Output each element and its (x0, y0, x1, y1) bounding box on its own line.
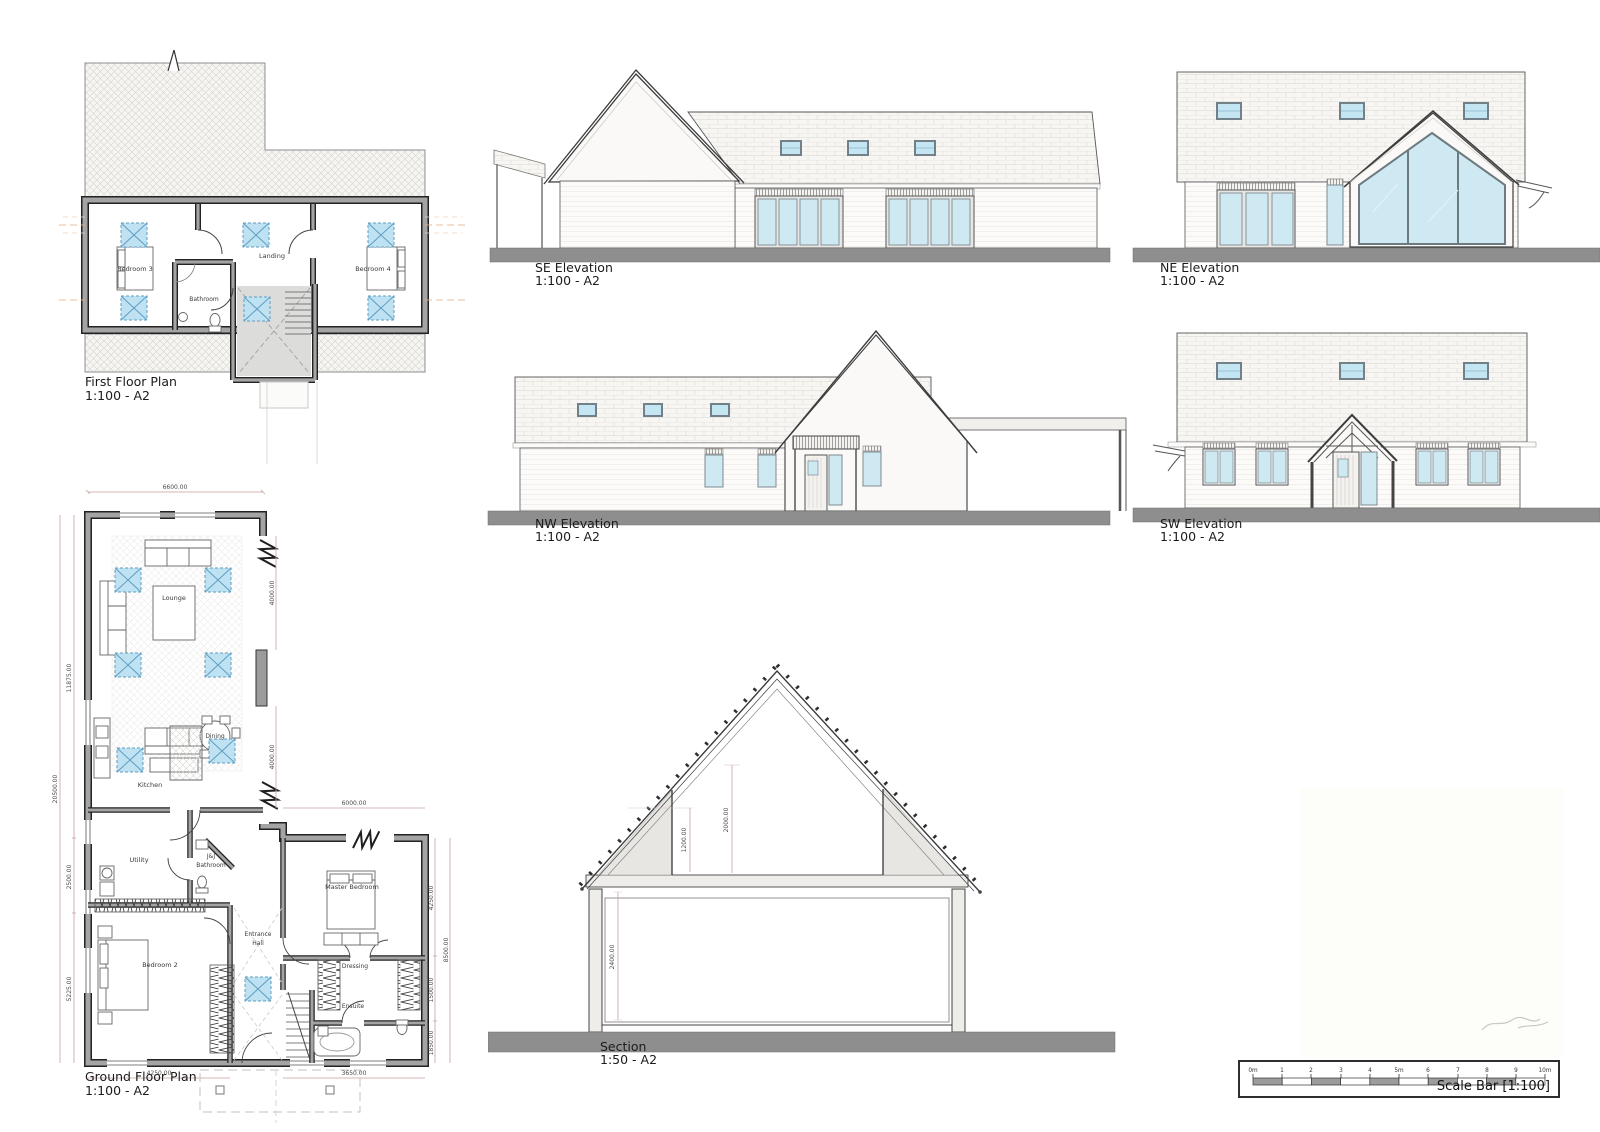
dim-gf-right-outer: 8500.00 (443, 937, 450, 962)
scale-bar: 0m 1 2 3 4 5m 6 7 8 9 10m (1238, 1060, 1560, 1098)
scale-tick-5: 5m (1394, 1068, 1404, 1074)
section-drawing: 1200.00 2000.00 2400.00 (488, 613, 1118, 1053)
scale-tick-1: 1 (1280, 1068, 1284, 1074)
dim-section-attic-inner: 1200.00 (681, 827, 688, 852)
dim-gf-left-upper: 11875.00 (66, 664, 73, 693)
dim-gf-master-top: 6000.00 (342, 800, 367, 807)
scale-tick-8: 8 (1485, 1068, 1489, 1074)
dim-gf-left-outer: 20500.00 (52, 775, 59, 804)
room-label-ensuite: Ensuite (342, 1003, 365, 1010)
label-ground-floor-plan-title: Ground Floor Plan (85, 1070, 197, 1083)
scale-tick-4: 4 (1368, 1068, 1372, 1074)
dim-gf-lounge-upper: 4000.00 (269, 580, 276, 605)
section-view: 1200.00 2000.00 2400.00 (488, 613, 1118, 1057)
scale-bar-label: Scale Bar [1:100] (1437, 1079, 1550, 1094)
sw-elevation-view (1128, 305, 1600, 531)
scale-tick-3: 3 (1339, 1068, 1343, 1074)
label-se-elevation-scale: 1:100 - A2 (535, 274, 600, 287)
room-label-utility: Utility (129, 856, 148, 864)
first-floor-plan-view: Bedroom 3 Bathroom Landing Bedroom 4 (55, 40, 475, 474)
scale-tick-9: 9 (1514, 1068, 1518, 1074)
first-floor-plan-drawing: Bedroom 3 Bathroom Landing Bedroom 4 (55, 40, 475, 470)
dim-section-ground: 2400.00 (609, 944, 616, 969)
room-label-bedroom4: Bedroom 4 (355, 265, 391, 273)
room-label-bedroom2: Bedroom 2 (142, 961, 178, 969)
dim-gf-left-mid: 2500.00 (66, 864, 73, 889)
label-ne-elevation-scale: 1:100 - A2 (1160, 274, 1225, 287)
se-elevation-view (488, 52, 1113, 268)
drawing-sheet: Bedroom 3 Bathroom Landing Bedroom 4 Fir… (0, 0, 1600, 1132)
label-nw-elevation-scale: 1:100 - A2 (535, 530, 600, 543)
room-label-entrance-2: Hall (252, 940, 264, 947)
nw-window-right (863, 446, 881, 486)
room-label-jj-1: J&J (206, 853, 215, 860)
room-label-jj-2: Bathroom (196, 862, 226, 869)
dim-gf-left-lower: 5225.00 (66, 976, 73, 1001)
ne-narrow-window (1327, 179, 1343, 245)
dim-gf-master-right: 4250.00 (428, 885, 435, 910)
label-first-floor-plan-scale: 1:100 - A2 (85, 389, 150, 402)
label-ground-floor-plan-scale: 1:100 - A2 (85, 1084, 150, 1097)
room-label-dining: Dining (205, 733, 225, 740)
label-first-floor-plan-title: First Floor Plan (85, 375, 177, 388)
scale-tick-7: 7 (1456, 1068, 1460, 1074)
ground-floor-plan-drawing: 6600.00 11875.00 2500.00 5225.00 20500.0… (50, 478, 470, 1126)
dim-gf-ensuite-right: 1850.00 (428, 1030, 435, 1055)
room-label-kitchen: Kitchen (138, 781, 162, 789)
dim-section-attic-full: 2000.00 (723, 807, 730, 832)
ne-elevation-drawing (1128, 52, 1600, 264)
ne-glazed-doors (1217, 183, 1295, 248)
room-label-lounge: Lounge (162, 594, 186, 602)
scale-tick-6: 6 (1426, 1068, 1430, 1074)
room-label-entrance-1: Entrance (245, 931, 272, 938)
dim-gf-dressing-right: 1500.00 (428, 977, 435, 1002)
label-sw-elevation-scale: 1:100 - A2 (1160, 530, 1225, 543)
signature-mark (1478, 1012, 1562, 1038)
dim-gf-top: 6600.00 (163, 484, 188, 491)
sw-elevation-drawing (1128, 305, 1600, 527)
nw-elevation-drawing (483, 305, 1128, 527)
scale-tick-10: 10m (1538, 1068, 1551, 1074)
dim-gf-lounge-lower: 4000.00 (269, 744, 276, 769)
nw-elevation-view (483, 305, 1128, 531)
room-label-master: Master Bedroom (325, 883, 379, 891)
se-elevation-drawing (488, 52, 1113, 264)
room-label-landing: Landing (259, 252, 285, 260)
label-section-scale: 1:50 - A2 (600, 1053, 657, 1066)
section-ground-bar (488, 1032, 1115, 1052)
scale-bar-ticks: 0m 1 2 3 4 5m 6 7 8 9 10m (1248, 1068, 1552, 1074)
ground-floor-plan-view: 6600.00 11875.00 2500.00 5225.00 20500.0… (50, 478, 470, 1130)
room-label-bedroom3: Bedroom 3 (117, 265, 153, 273)
scale-tick-2: 2 (1309, 1068, 1313, 1074)
ne-elevation-view (1128, 52, 1600, 268)
room-label-dressing: Dressing (342, 963, 368, 970)
room-label-bathroom: Bathroom (189, 296, 219, 303)
dim-gf-bottom-right: 3650.00 (342, 1070, 367, 1077)
scale-tick-0: 0m (1248, 1068, 1258, 1074)
